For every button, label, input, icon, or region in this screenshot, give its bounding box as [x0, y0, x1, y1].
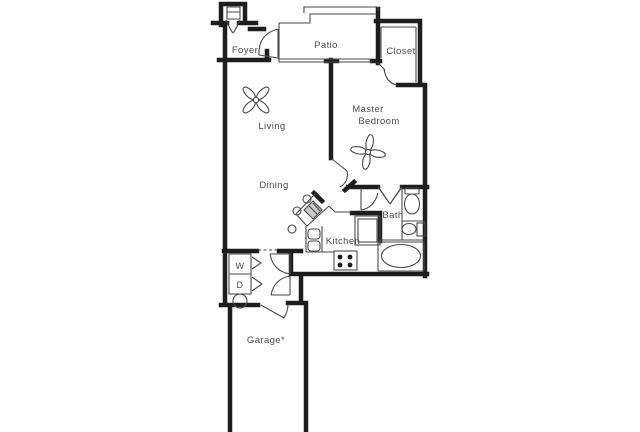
shower-inner: [358, 219, 377, 242]
stove-burners: [338, 255, 353, 268]
bath-closet-double-door: [378, 187, 402, 204]
living-ceiling-fan-icon: [231, 75, 280, 124]
bar-stool-3: [288, 225, 296, 233]
room-label-master-line2: Bedroom: [358, 116, 399, 127]
patio-outline: [279, 7, 378, 62]
room-label-foyer: Foyer: [232, 45, 258, 56]
room-label-kitchen: Kitchen: [326, 236, 361, 247]
bedroom-ceiling-fan-icon: [348, 132, 389, 173]
room-label-master-line1: Master: [352, 104, 383, 115]
floor-plan-svg: Foyer Patio Closet Living Master Bedroom…: [0, 0, 640, 432]
room-label-garage: Garage*: [247, 335, 285, 346]
closet-door-swing: [377, 62, 397, 85]
floor-plan-page: Foyer Patio Closet Living Master Bedroom…: [0, 0, 640, 432]
room-label-dryer: D: [237, 280, 244, 290]
room-label-living: Living: [258, 121, 285, 132]
garage-door-swing: [261, 304, 288, 318]
bathtub-icon: [382, 245, 421, 268]
bedroom-door-swing: [332, 159, 347, 187]
bar-stool-2: [293, 207, 301, 215]
bath-sink-icon: [402, 224, 416, 235]
room-label-bath: Bath: [382, 210, 403, 221]
room-label-dining: Dining: [259, 180, 288, 191]
bifold-door-chevrons: [252, 257, 262, 291]
bathtub-surround: [378, 242, 424, 271]
hall-door-lower-swing: [271, 276, 290, 295]
toilet-icon: [405, 194, 420, 214]
room-label-washer: W: [236, 261, 245, 271]
bath-door-swing: [361, 188, 378, 210]
stove-icon: [334, 251, 357, 270]
sink-basin-2: [308, 241, 320, 251]
room-labels: Foyer Patio Closet Living Master Bedroom…: [232, 40, 416, 346]
room-label-closet: Closet: [386, 46, 415, 57]
porch-step-lines: [227, 7, 240, 19]
hall-door-upper-swing: [270, 254, 290, 274]
room-label-patio: Patio: [314, 40, 338, 51]
sink-basin-1: [308, 229, 320, 239]
